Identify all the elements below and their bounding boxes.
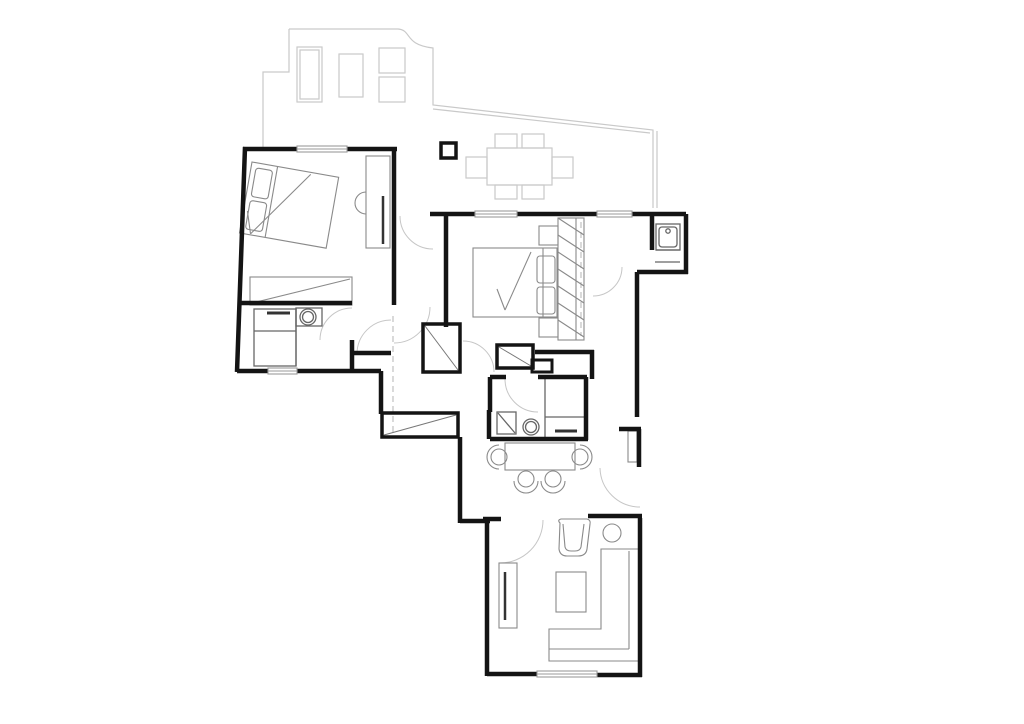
floor-plan-page <box>0 0 1024 724</box>
plan-background <box>0 0 1024 724</box>
window-bedroom2-top <box>475 211 517 217</box>
window-corridor-top <box>597 211 632 217</box>
window-living-bottom <box>537 671 597 677</box>
column <box>441 143 456 158</box>
window-bathroom1-bottom <box>268 368 297 374</box>
window-bedroom1-top <box>297 146 347 152</box>
floor-plan-drawing <box>0 0 1024 724</box>
